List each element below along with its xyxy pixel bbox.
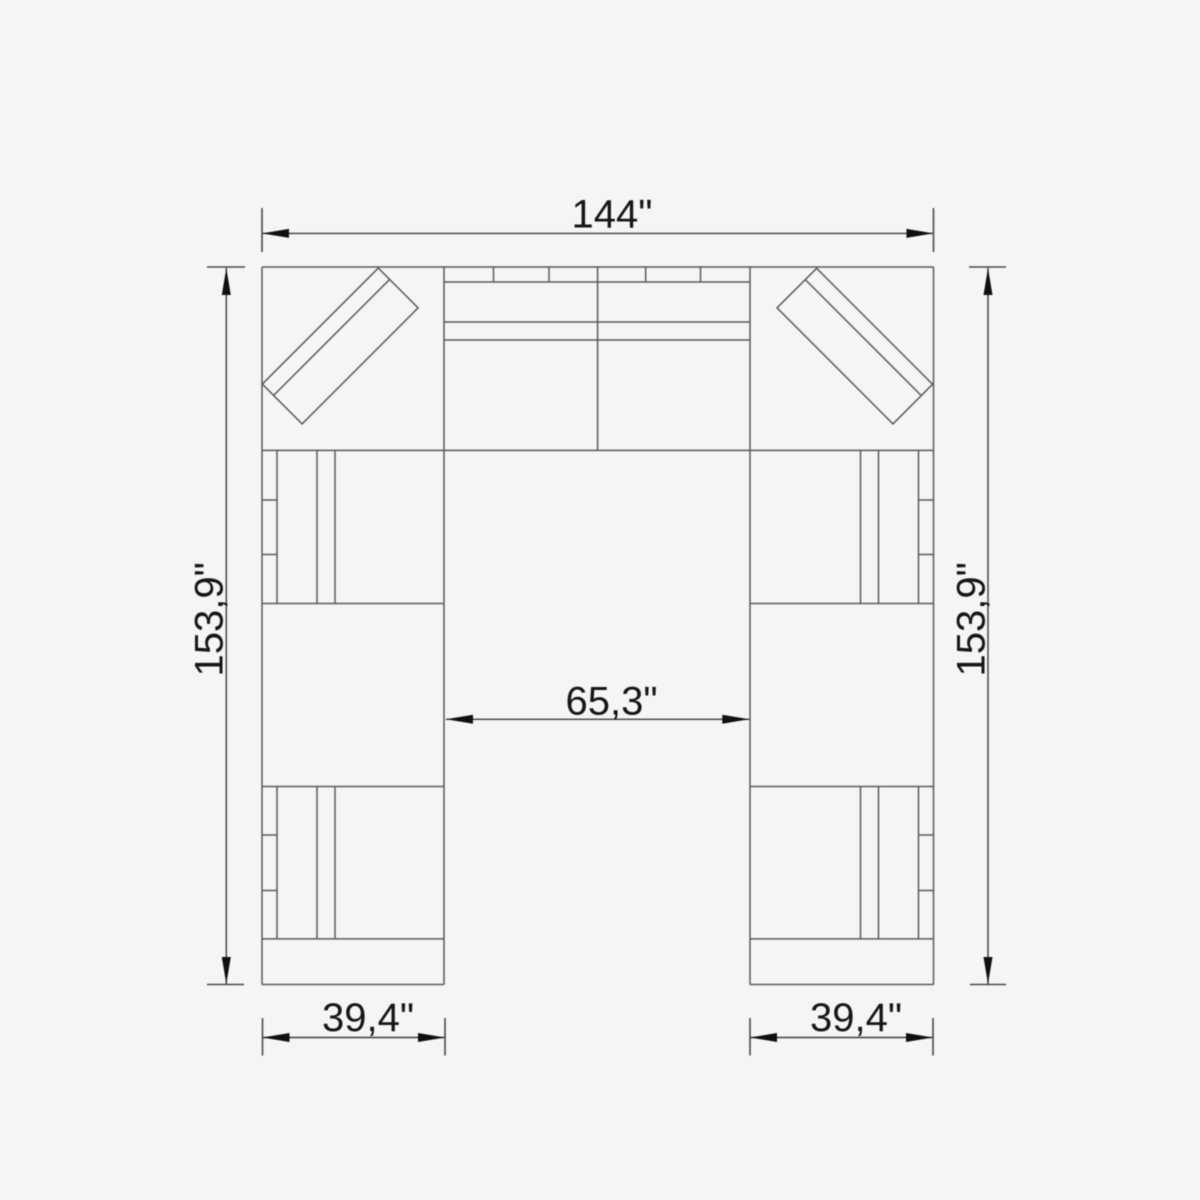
svg-text:153,9": 153,9" <box>188 562 232 676</box>
svg-text:39,4": 39,4" <box>322 996 414 1040</box>
svg-text:144": 144" <box>572 193 653 237</box>
svg-text:39,4": 39,4" <box>810 996 902 1040</box>
svg-text:65,3": 65,3" <box>565 680 657 724</box>
svg-text:153,9": 153,9" <box>949 562 993 676</box>
